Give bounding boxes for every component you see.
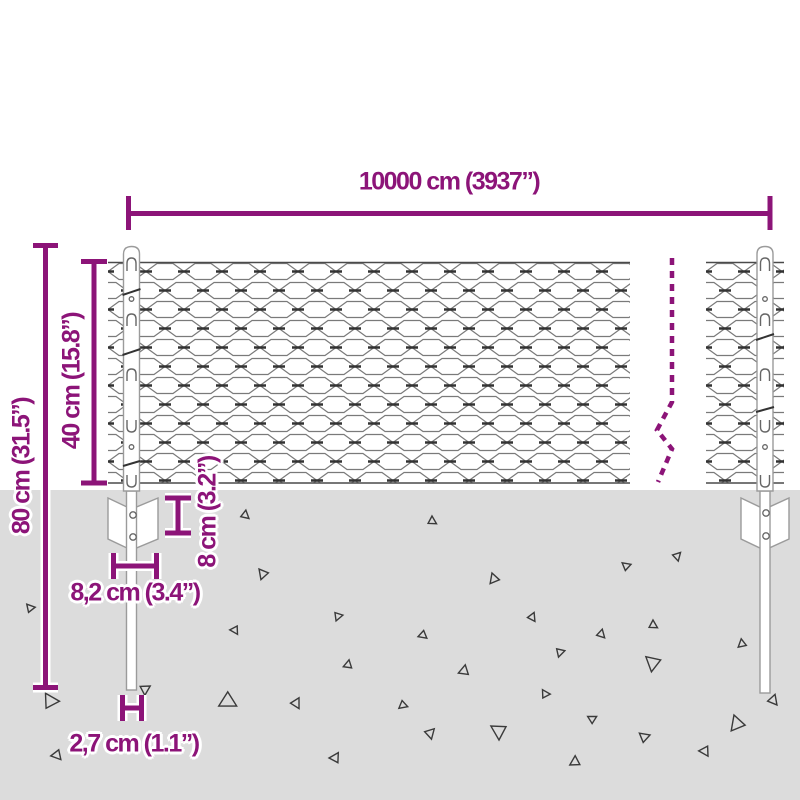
dimension-total-width: [129, 196, 771, 230]
mesh-left-section: [108, 262, 630, 483]
dimension-label-anchor-width: 8,2 cm (3.4”): [70, 579, 199, 608]
diagram-canvas: [0, 0, 800, 800]
dimension-label-post-width: 2,7 cm (1.1”): [69, 730, 198, 759]
dimension-label-anchor-depth: 8 cm (3.2”): [194, 456, 223, 567]
dimension-label-post-height: 80 cm (31.5”): [8, 398, 37, 534]
dimension-label-total-width: 10000 cm (3937”): [359, 168, 539, 197]
break-continuation-line: [657, 258, 672, 482]
post-stake-right: [760, 491, 770, 693]
fence-dimension-diagram: 10000 cm (3937”) 80 cm (31.5”) 40 cm (15…: [0, 0, 800, 800]
dimension-label-mesh-height: 40 cm (15.8”): [58, 313, 87, 449]
